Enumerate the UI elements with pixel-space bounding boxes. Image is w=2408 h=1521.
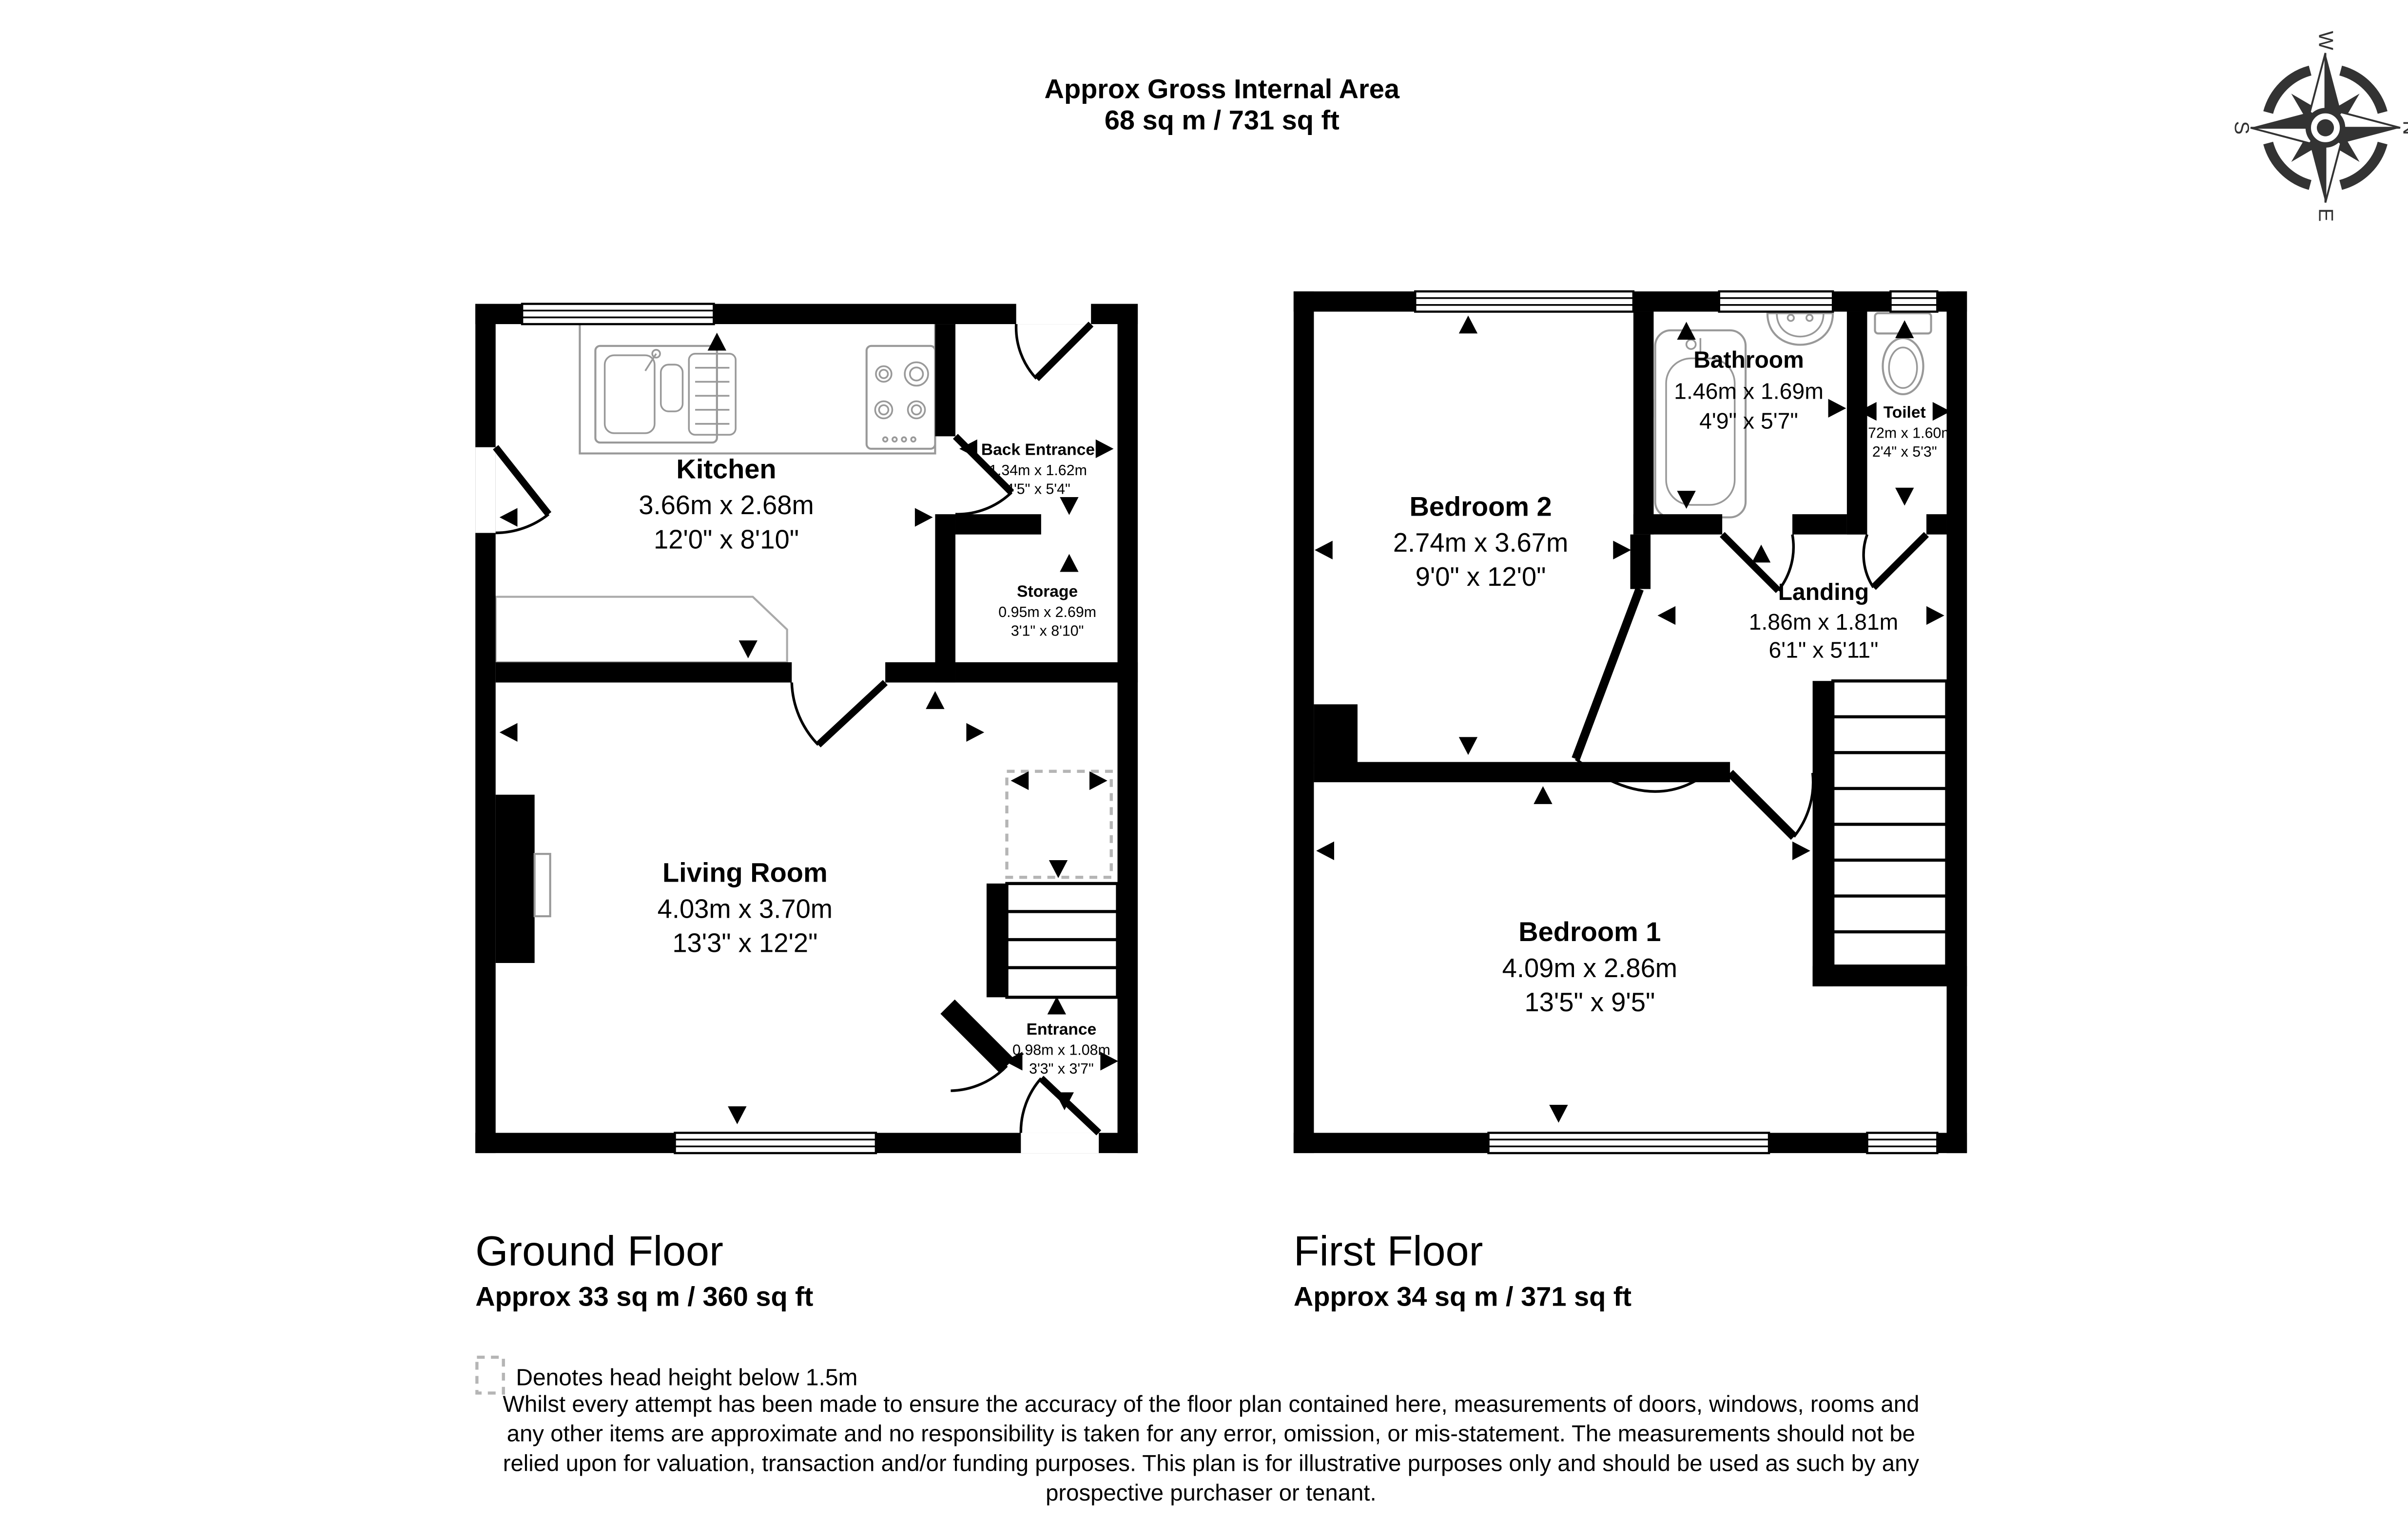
head-height-legend-text: Denotes head height below 1.5m (516, 1365, 857, 1390)
side-door (496, 447, 549, 533)
ground-floor-plan: Kitchen 3.66m x 2.68m 12'0" x 8'10" Back… (475, 304, 1138, 1153)
landing-label: Landing 1.86m x 1.81m 6'1" x 5'11" (1749, 579, 1899, 662)
svg-text:13'3" x 12'2": 13'3" x 12'2" (672, 928, 817, 958)
kitchen-label: Kitchen 3.66m x 2.68m 12'0" x 8'10" (639, 454, 814, 555)
disclaimer-line: prospective purchaser or tenant. (1046, 1480, 1377, 1506)
svg-text:0.95m x 2.69m: 0.95m x 2.69m (998, 604, 1096, 620)
svg-text:1.34m x 1.62m: 1.34m x 1.62m (989, 462, 1087, 479)
window (1415, 291, 1633, 312)
svg-text:12'0" x 8'10": 12'0" x 8'10" (654, 524, 799, 554)
kitchen-counter-icon (580, 321, 935, 454)
compass-east-label: E (2315, 208, 2338, 222)
svg-text:9'0" x 12'0": 9'0" x 12'0" (1416, 562, 1546, 592)
svg-text:Bedroom 2: Bedroom 2 (1409, 491, 1552, 521)
first-floor-area: Approx 34 sq m / 371 sq ft (1294, 1281, 1631, 1311)
svg-text:3.66m x 2.68m: 3.66m x 2.68m (639, 490, 814, 520)
ground-floor-caption: Ground Floor Approx 33 sq m / 360 sq ft (475, 1228, 813, 1311)
bedroom2-door (1576, 589, 1696, 791)
ground-floor-area: Approx 33 sq m / 360 sq ft (475, 1281, 813, 1311)
page-title: Approx Gross Internal Area (1045, 73, 1400, 104)
svg-text:4'5" x 5'4": 4'5" x 5'4" (1006, 481, 1070, 498)
window (1719, 291, 1833, 312)
fireplace-icon (535, 854, 550, 916)
basin-icon (1767, 313, 1833, 345)
compass-icon: N E S W (2231, 31, 2408, 222)
front-door (1021, 1078, 1099, 1133)
window (522, 304, 714, 324)
svg-text:2.74m x 3.67m: 2.74m x 3.67m (1393, 528, 1568, 558)
floorplan-page: Approx Gross Internal Area 68 sq m / 731… (0, 0, 2408, 1521)
low-counter-outline (496, 597, 787, 662)
first-floor-plan: Bedroom 2 2.74m x 3.67m 9'0" x 12'0" Bat… (1294, 291, 1967, 1153)
svg-text:Landing: Landing (1778, 579, 1869, 605)
disclaimer-line: Whilst every attempt has been made to en… (503, 1391, 1919, 1417)
bedroom1-label: Bedroom 1 4.09m x 2.86m 13'5" x 9'5" (1502, 916, 1677, 1017)
entrance-label: Entrance 0.98m x 1.08m 3'3" x 3'7" (1012, 1020, 1110, 1077)
svg-text:Living Room: Living Room (662, 857, 828, 888)
ground-floor-name: Ground Floor (475, 1228, 723, 1274)
svg-text:3'3" x 3'7": 3'3" x 3'7" (1029, 1061, 1094, 1077)
svg-text:1.86m x 1.81m: 1.86m x 1.81m (1749, 609, 1899, 635)
sink-icon (595, 346, 736, 443)
chimney-breast (1314, 704, 1358, 764)
svg-text:2'4" x 5'3": 2'4" x 5'3" (1872, 444, 1937, 460)
back-entrance-label: Back Entrance 1.34m x 1.62m 4'5" x 5'4" (981, 441, 1095, 498)
svg-text:Toilet: Toilet (1884, 404, 1926, 422)
svg-text:Bedroom 1: Bedroom 1 (1518, 916, 1661, 947)
window (1890, 291, 1937, 312)
kitchen-living-door (792, 682, 885, 745)
bedroom2-label: Bedroom 2 2.74m x 3.67m 9'0" x 12'0" (1393, 491, 1568, 592)
stairs-first (1833, 681, 1946, 966)
svg-text:Storage: Storage (1017, 583, 1078, 601)
hob-icon (867, 346, 935, 449)
svg-text:Kitchen: Kitchen (676, 454, 776, 484)
svg-text:0.98m x 1.08m: 0.98m x 1.08m (1012, 1042, 1110, 1059)
legend: Denotes head height below 1.5m (477, 1357, 857, 1393)
chimney-breast (496, 795, 535, 963)
compass-north-label: N (2399, 120, 2408, 135)
toilet-door (1864, 535, 1926, 588)
svg-text:4.03m x 3.70m: 4.03m x 3.70m (658, 894, 833, 924)
svg-text:13'5" x 9'5": 13'5" x 9'5" (1524, 987, 1655, 1017)
window (1867, 1133, 1937, 1154)
compass-south-label: S (2231, 121, 2253, 135)
svg-text:4'9" x 5'7": 4'9" x 5'7" (1699, 408, 1798, 433)
first-floor-caption: First Floor Approx 34 sq m / 371 sq ft (1294, 1228, 1631, 1311)
back-door (1016, 324, 1091, 379)
svg-text:Bathroom: Bathroom (1693, 347, 1804, 373)
svg-text:Back Entrance: Back Entrance (981, 441, 1095, 459)
page-subtitle: 68 sq m / 731 sq ft (1105, 104, 1340, 135)
svg-text:1.46m x 1.69m: 1.46m x 1.69m (1674, 379, 1824, 404)
living-room-label: Living Room 4.03m x 3.70m 13'3" x 12'2" (658, 857, 833, 958)
window (675, 1133, 875, 1154)
window (1489, 1133, 1769, 1154)
compass-west-label: W (2315, 31, 2338, 51)
svg-text:3'1" x 8'10": 3'1" x 8'10" (1011, 623, 1084, 639)
bedroom1-door (1730, 773, 1813, 837)
chamfer-wall (948, 1007, 1007, 1066)
head-height-legend-icon (477, 1357, 503, 1393)
disclaimer-line: relied upon for valuation, transaction a… (503, 1450, 1920, 1476)
storage-label: Storage 0.95m x 2.69m 3'1" x 8'10" (998, 583, 1096, 639)
svg-text:4.09m x 2.86m: 4.09m x 2.86m (1502, 953, 1677, 983)
disclaimer: Whilst every attempt has been made to en… (503, 1391, 1919, 1506)
disclaimer-line: any other items are approximate and no r… (507, 1421, 1915, 1447)
stairs-ground (1007, 884, 1118, 997)
header: Approx Gross Internal Area 68 sq m / 731… (1045, 73, 1400, 135)
svg-text:Entrance: Entrance (1027, 1020, 1097, 1039)
first-floor-name: First Floor (1294, 1228, 1483, 1274)
svg-text:6'1" x 5'11": 6'1" x 5'11" (1768, 637, 1878, 662)
svg-text:0.72m x 1.60m: 0.72m x 1.60m (1856, 425, 1954, 441)
